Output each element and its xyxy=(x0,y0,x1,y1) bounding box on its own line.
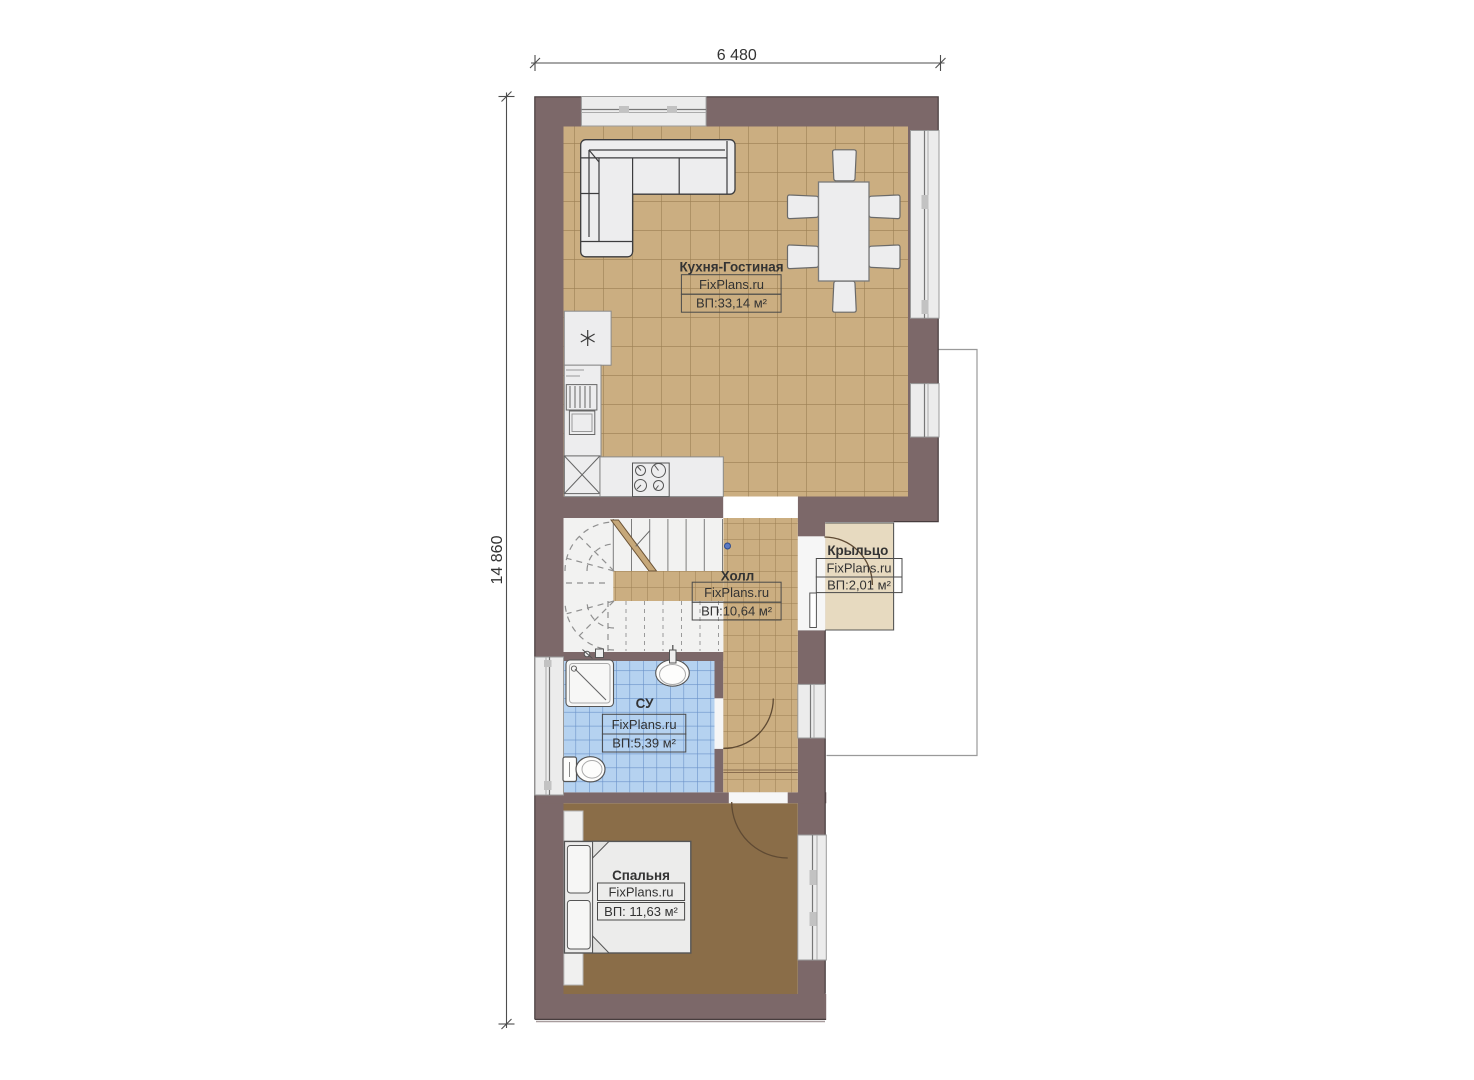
svg-text:FixPlans.ru: FixPlans.ru xyxy=(699,277,764,292)
svg-text:FixPlans.ru: FixPlans.ru xyxy=(612,717,677,732)
svg-text:6 480: 6 480 xyxy=(717,47,757,64)
svg-text:14 860: 14 860 xyxy=(489,535,506,584)
svg-text:СУ: СУ xyxy=(636,696,654,711)
svg-text:ВП:10,64 м²: ВП:10,64 м² xyxy=(701,604,773,619)
svg-text:Спальня: Спальня xyxy=(612,868,670,883)
svg-text:FixPlans.ru: FixPlans.ru xyxy=(704,585,769,600)
svg-text:ВП:2,01 м²: ВП:2,01 м² xyxy=(827,578,891,593)
svg-text:Холл: Холл xyxy=(721,569,755,584)
svg-text:FixPlans.ru: FixPlans.ru xyxy=(608,885,673,900)
svg-text:ВП: 11,63 м²: ВП: 11,63 м² xyxy=(604,904,678,919)
svg-text:Крыльцо: Крыльцо xyxy=(827,543,888,558)
svg-text:ВП:33,14 м²: ВП:33,14 м² xyxy=(696,296,768,311)
svg-text:Кухня-Гостиная: Кухня-Гостиная xyxy=(679,260,783,275)
svg-text:FixPlans.ru: FixPlans.ru xyxy=(826,561,891,576)
svg-text:ВП:5,39 м²: ВП:5,39 м² xyxy=(612,736,676,751)
